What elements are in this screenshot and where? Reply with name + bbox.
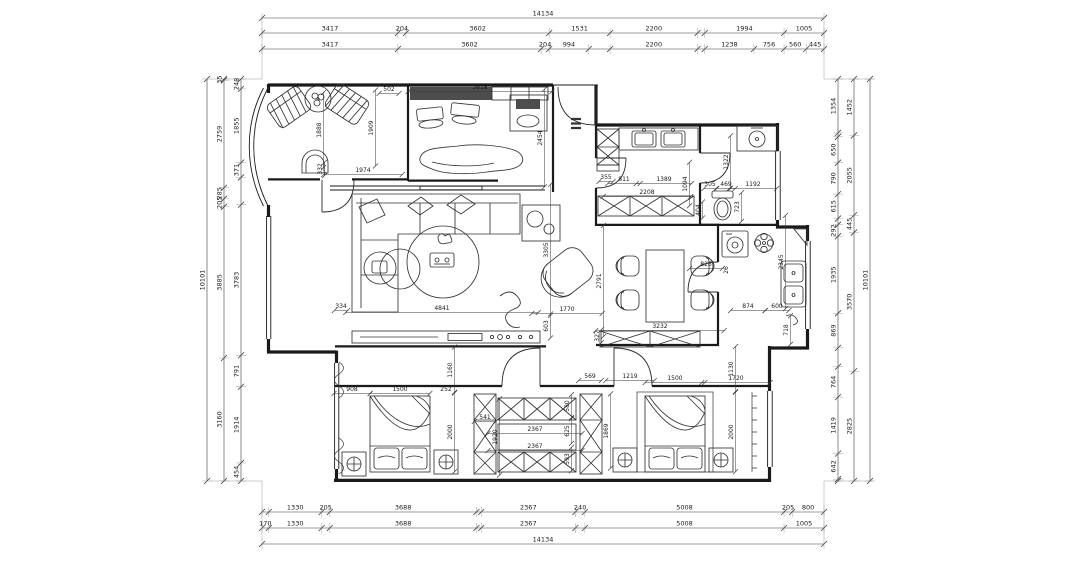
dimension-label: 1935 (830, 267, 838, 284)
dimension-label: 445 (846, 218, 854, 230)
dimension-label: 3160 (216, 411, 224, 428)
dimension-label: 569 (584, 373, 596, 380)
dimension-label: 718 (783, 324, 790, 336)
dimension-label: 625 (564, 425, 571, 437)
dimension-label: 2208 (639, 189, 654, 196)
dimension-label: 1130 (728, 361, 735, 376)
dimension-label: 3783 (233, 272, 241, 289)
dimension-label: 205 (216, 197, 224, 209)
dimension-label: 3305 (543, 242, 550, 257)
dimension-label: 642 (830, 460, 838, 472)
floor-plan-canvas: 1413434172043602153122001994100534173602… (0, 0, 1074, 576)
dimension-label: 1920 (492, 429, 499, 444)
dimension-label: 252 (440, 386, 452, 393)
dimension-label: 502 (383, 86, 395, 93)
dimension-label: 2825 (846, 418, 854, 435)
dimension-label: 14134 (533, 10, 554, 18)
dimension-label: 3688 (395, 520, 412, 528)
dimension-label: 1855 (233, 118, 241, 135)
dimension-label: 3618 (472, 84, 487, 91)
dimension-label: 811 (618, 176, 630, 183)
dimension-label: 205 (320, 504, 332, 512)
floor-plan-page: 1413434172043602153122001994100534173602… (0, 0, 1074, 576)
interior-dimension: 26 (723, 266, 730, 274)
dimension-label: 650 (830, 144, 838, 156)
dimension-label: 994 (563, 41, 575, 49)
interior-dimension: 252 (440, 386, 452, 393)
dimension-label: 26 (723, 266, 730, 274)
dimension-label: 2200 (646, 25, 663, 33)
dimension-label: 2367 (520, 520, 537, 528)
dimension-label: 327 (594, 330, 601, 342)
dimension-label: 292 (830, 224, 838, 236)
dimension-label: 170 (259, 520, 271, 528)
dimension-label: 756 (763, 41, 775, 49)
dimension-label: 874 (742, 303, 754, 310)
dimension-label: 1869 (603, 423, 610, 438)
dimension-label: 1094 (682, 176, 689, 191)
dimension-label: 3232 (652, 323, 667, 330)
dimension-label: 3885 (216, 274, 224, 291)
dimension-label: 580 (564, 400, 571, 412)
dimension-label: 2367 (520, 504, 537, 512)
dimension-label: 371 (233, 164, 241, 176)
dimension-label: 1330 (287, 520, 304, 528)
dimension-label: 332 (317, 163, 324, 175)
dimension-label: 3602 (469, 25, 486, 33)
dimension-label: 2000 (447, 424, 454, 439)
dimension-label: 1770 (559, 306, 574, 313)
dimension-label: 205 (782, 504, 794, 512)
dimension-label: 1531 (571, 25, 588, 33)
dimension-label: 791 (233, 365, 241, 377)
dimension-label: 240 (574, 504, 586, 512)
dimension-label: 10101 (199, 270, 207, 291)
dimension-label: 204 (396, 25, 408, 33)
dimension-label: 1994 (736, 25, 753, 33)
dimension-label: 3417 (322, 41, 339, 49)
dimension-label: 454 (233, 466, 241, 478)
dimension-label: 14134 (533, 536, 554, 544)
dimension-label: 445 (809, 41, 821, 49)
dimension-label: 334 (335, 303, 347, 310)
dimension-label: 826 (700, 261, 712, 268)
dimension-label: 1330 (287, 504, 304, 512)
dimension-label: 1192 (745, 181, 760, 188)
dimension-label: 1500 (392, 386, 407, 393)
dimension-label: 615 (830, 200, 838, 212)
dimension-label: 2055 (846, 167, 854, 184)
dimension-label: 3417 (322, 25, 339, 33)
dimension-label: 790 (830, 172, 838, 184)
dimension-label: 1005 (796, 25, 813, 33)
dimension-label: 1909 (368, 120, 375, 135)
dimension-label: 2000 (728, 424, 735, 439)
dimension-label: 1160 (447, 362, 454, 377)
dimension-label: 1452 (846, 99, 854, 116)
dimension-label: 3602 (461, 41, 478, 49)
dimension-label: 1419 (830, 417, 838, 434)
dimension-label: 1219 (622, 373, 637, 380)
dimension-label: 1500 (667, 375, 682, 382)
dimension-label: 800 (802, 504, 814, 512)
dimension-label: 305 (704, 181, 716, 188)
dimension-label: 1914 (233, 417, 241, 434)
dimension-label: 1354 (830, 98, 838, 115)
dimension-label: 2367 (527, 426, 542, 433)
dimension-label: 908 (346, 386, 358, 393)
dimension-label: 1005 (796, 520, 813, 528)
dimension-label: 3688 (395, 504, 412, 512)
dimension-label: 248 (233, 78, 241, 90)
dimension-label: 2345 (778, 254, 785, 269)
dimension-label: 5008 (676, 504, 693, 512)
dimension-label: 764 (830, 376, 838, 388)
dimension-label: 2200 (646, 41, 663, 49)
dimension-label: 603 (543, 320, 550, 332)
dimension-label: 404 (695, 204, 702, 216)
dimension-label: 2791 (596, 273, 603, 288)
dimension-label: 4841 (434, 305, 449, 312)
dimension-label: 541 (479, 414, 491, 421)
dimension-label: 5008 (676, 520, 693, 528)
dimension-label: 204 (539, 41, 551, 49)
dimension-label: 2454 (537, 130, 544, 145)
dimension-label: 723 (734, 201, 741, 213)
dimension-label: 1238 (721, 41, 738, 49)
dimension-label: 1974 (355, 167, 370, 174)
dimension-label: 1389 (656, 176, 671, 183)
dimension-label: 1888 (316, 122, 323, 137)
dimension-label: 3570 (846, 294, 854, 311)
dimension-label: 1322 (723, 154, 730, 169)
dimension-label: 869 (830, 324, 838, 336)
dimension-label: 2759 (216, 126, 224, 143)
dimension-label: 2367 (527, 443, 542, 450)
dimension-label: 469 (720, 181, 732, 188)
dimension-label: 355 (600, 174, 612, 181)
dimension-label: 10101 (862, 270, 870, 291)
dimension-label: 593 (564, 453, 571, 465)
dimension-label: 600 (771, 303, 783, 310)
dimension-label: 560 (789, 41, 801, 49)
